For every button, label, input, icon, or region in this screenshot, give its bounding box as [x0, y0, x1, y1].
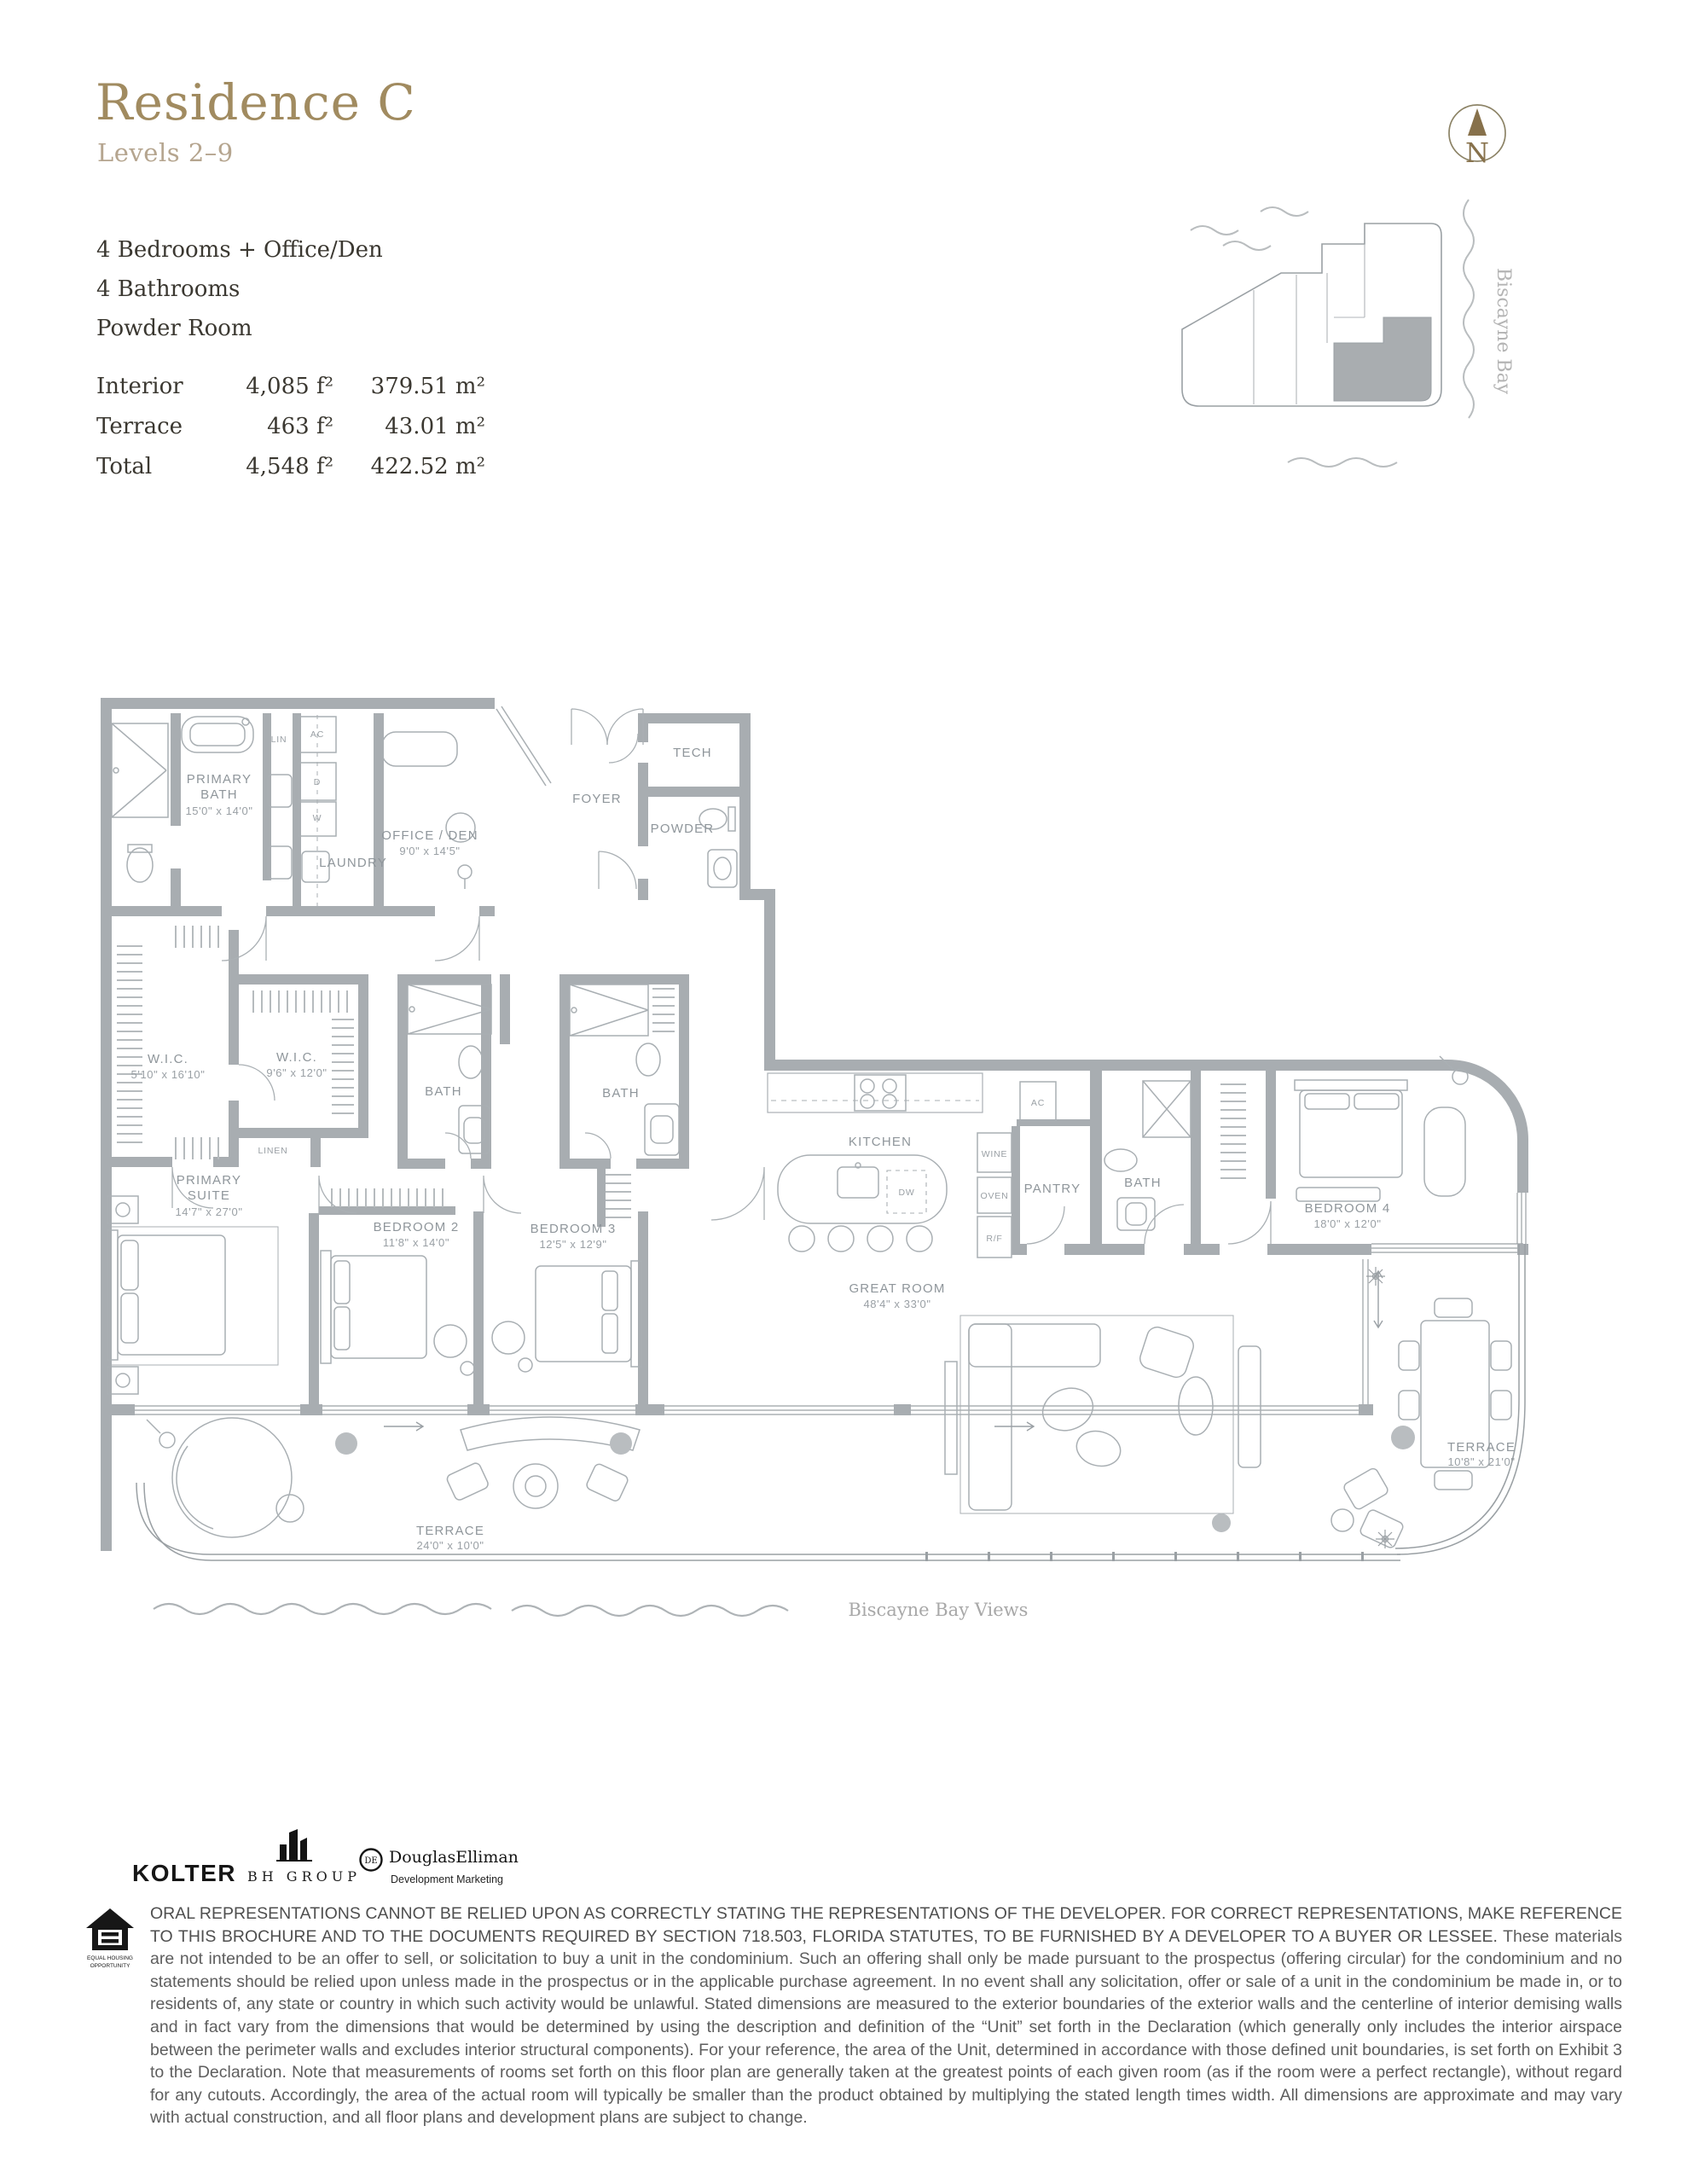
room-label: LINEN — [258, 1146, 288, 1156]
room-label: SUITE — [188, 1188, 230, 1203]
room-label: AC — [1031, 1098, 1045, 1108]
douglas-elliman-icon: DE — [358, 1846, 386, 1873]
toilet-icon — [127, 848, 153, 882]
furniture — [107, 706, 1511, 1549]
armchair-icon — [434, 1325, 467, 1357]
chair-icon — [1399, 1391, 1419, 1420]
room-label: R/F — [986, 1234, 1002, 1244]
room-dims: 11'8" x 14'0" — [383, 1236, 449, 1249]
room-label: BEDROOM 4 — [1305, 1201, 1391, 1216]
room-label: D — [314, 777, 321, 787]
feature-bedrooms: 4 Bedrooms + Office/Den — [96, 230, 383, 270]
north-triangle-icon — [1468, 108, 1487, 136]
room-label: W.I.C. — [148, 1052, 188, 1066]
room-label: OFFICE / DEN — [381, 828, 478, 843]
room-dims: 10'8" x 21'0" — [1447, 1455, 1515, 1468]
armchair-icon — [492, 1321, 525, 1354]
area-label: Interior — [96, 374, 216, 399]
room-label: KITCHEN — [849, 1135, 912, 1149]
area-row-terrace: Terrace 463 f² 43.01 m² — [96, 414, 485, 454]
nightstand-icon — [107, 1367, 138, 1394]
room-label: PRIMARY — [187, 772, 252, 787]
room-dims: 14'7" x 27'0" — [175, 1205, 242, 1218]
room-label: TECH — [673, 746, 712, 760]
brochure-page: { "header": { "title": "Residence C", "s… — [0, 0, 1687, 2184]
kolter-logo: KOLTER — [132, 1860, 236, 1887]
area-row-total: Total 4,548 f² 422.52 m² — [96, 454, 485, 494]
biscayne-bay-caption: Biscayne Bay — [1493, 268, 1514, 395]
terrace-rails — [136, 1244, 1525, 1560]
room-label: AC — [310, 729, 324, 740]
bay-water: Biscayne Bay Views — [154, 1165, 1535, 1626]
planters — [335, 1426, 1415, 1532]
room-label: DW — [898, 1188, 914, 1198]
north-arrow-icon: N — [1445, 89, 1510, 177]
room-label: BEDROOM 3 — [530, 1222, 617, 1236]
sofa-icon — [969, 1324, 1012, 1510]
douglas-elliman-sub: Development Marketing — [391, 1873, 503, 1885]
room-label: TERRACE — [416, 1524, 484, 1538]
toilet-icon — [636, 1043, 660, 1076]
chair-icon — [1491, 1391, 1511, 1420]
legal-disclaimer: ORAL REPRESENTATIONS CANNOT BE RELIED UP… — [150, 1902, 1622, 2129]
stool-icon — [867, 1226, 893, 1252]
douglas-elliman-logo: DouglasElliman — [389, 1848, 519, 1867]
room-label: PRIMARY — [177, 1173, 241, 1188]
room-label: TERRACE — [1447, 1440, 1516, 1455]
room-label: PANTRY — [1024, 1182, 1081, 1196]
lounge-chair-icon — [1342, 1467, 1389, 1510]
room-dims: 24'0" x 10'0" — [416, 1539, 484, 1552]
shower-icon — [570, 985, 648, 1036]
room-label: WINE — [982, 1149, 1008, 1159]
bh-group-icon — [275, 1821, 314, 1863]
daybed-icon — [382, 732, 457, 766]
area-imperial: 463 f² — [216, 414, 333, 439]
side-table-icon — [1331, 1509, 1354, 1531]
room-dims: 9'6" x 12'0" — [266, 1066, 327, 1079]
chair-icon — [1435, 1298, 1472, 1317]
room-label: BEDROOM 2 — [374, 1220, 460, 1234]
nightstand-icon — [107, 1196, 138, 1223]
counter — [768, 1073, 983, 1112]
lounge-chair-icon — [445, 1461, 490, 1501]
area-metric: 43.01 m² — [333, 414, 485, 439]
sink-icon — [708, 850, 737, 887]
lounge-chair-icon — [585, 1462, 629, 1502]
console-icon — [1238, 1346, 1261, 1467]
bed-icon — [321, 1251, 331, 1363]
room-labels: PRIMARY BATH 15'0" x 14'0" LIN AC D W LA… — [131, 729, 1516, 1552]
area-label: Terrace — [96, 414, 216, 439]
eho-line1: EQUAL HOUSING — [87, 1955, 133, 1961]
shower-icon — [408, 985, 491, 1034]
eho-line2: OPPORTUNITY — [90, 1963, 130, 1969]
area-metric: 422.52 m² — [333, 454, 485, 479]
area-imperial: 4,085 f² — [216, 374, 333, 399]
sink-icon — [645, 1104, 679, 1155]
room-dims: 5'10" x 16'10" — [131, 1068, 206, 1081]
round-chair-icon — [172, 1418, 292, 1537]
area-metric: 379.51 m² — [333, 374, 485, 399]
room-label: BATH — [200, 787, 238, 802]
room-label: LAUNDRY — [319, 856, 387, 870]
sink-icon — [268, 846, 292, 879]
equal-housing-icon: EQUAL HOUSING OPPORTUNITY — [82, 1906, 138, 1971]
area-table: Interior 4,085 f² 379.51 m² Terrace 463 … — [96, 374, 485, 494]
room-label: LIN — [271, 735, 287, 745]
feature-bathrooms: 4 Bathrooms — [96, 270, 383, 309]
room-dims: 15'0" x 14'0" — [185, 804, 252, 817]
room-dims: 12'5" x 12'9" — [539, 1238, 606, 1251]
sink-icon — [268, 775, 292, 807]
coffee-table-icon — [513, 1464, 558, 1508]
room-label: BATH — [602, 1086, 640, 1101]
chaise-icon — [1424, 1107, 1465, 1196]
room-label: FOYER — [572, 792, 622, 806]
sofa-icon — [969, 1324, 1100, 1367]
shower-icon — [112, 723, 168, 817]
toilet-icon — [1104, 1149, 1137, 1171]
feature-list: 4 Bedrooms + Office/Den 4 Bathrooms Powd… — [96, 230, 383, 348]
floor-plan: PRIMARY BATH 15'0" x 14'0" LIN AC D W LA… — [85, 674, 1535, 1655]
north-label: N — [1465, 136, 1489, 169]
svg-text:DE: DE — [364, 1856, 377, 1866]
legal-caps: ORAL REPRESENTATIONS CANNOT BE RELIED UP… — [150, 1904, 1622, 1946]
stool-icon — [789, 1226, 815, 1252]
ottoman-icon — [1073, 1426, 1125, 1471]
room-label: BATH — [1124, 1176, 1162, 1190]
room-label: W.I.C. — [276, 1050, 317, 1065]
room-label: POWDER — [651, 822, 715, 836]
chair-icon — [1435, 1471, 1472, 1490]
room-label: GREAT ROOM — [849, 1281, 945, 1296]
bh-group-logo: BH GROUP — [247, 1868, 361, 1885]
bay-views-caption: Biscayne Bay Views — [849, 1600, 1029, 1620]
area-label: Total — [96, 454, 216, 479]
room-dims: 18'0" x 12'0" — [1313, 1217, 1381, 1230]
toilet-icon — [459, 1046, 483, 1078]
sink-icon — [838, 1167, 878, 1198]
walls — [101, 698, 1528, 1551]
room-dims: 48'4" x 33'0" — [863, 1298, 930, 1310]
building-footprint — [1182, 224, 1441, 406]
bed-icon — [1295, 1080, 1407, 1090]
key-plan: Biscayne Bay — [1160, 186, 1535, 493]
armchair-icon — [1138, 1325, 1197, 1380]
chair-icon — [1399, 1341, 1419, 1370]
feature-powder: Powder Room — [96, 309, 383, 348]
rug — [111, 1227, 278, 1365]
legal-body: These materials are not intended to be a… — [150, 1927, 1622, 2128]
media-console-icon — [945, 1362, 957, 1474]
room-label: BATH — [425, 1084, 462, 1099]
bench-icon — [1296, 1188, 1380, 1201]
area-imperial: 4,548 f² — [216, 454, 333, 479]
stool-icon — [828, 1226, 854, 1252]
page-subtitle: Levels 2–9 — [97, 138, 234, 167]
area-row-interior: Interior 4,085 f² 379.51 m² — [96, 374, 485, 414]
room-label: W — [313, 813, 322, 823]
room-label: OVEN — [981, 1191, 1009, 1201]
stool-icon — [907, 1226, 932, 1252]
page-title: Residence C — [96, 73, 416, 131]
room-dims: 9'0" x 14'5" — [399, 845, 460, 857]
ottoman-icon — [1037, 1381, 1099, 1438]
chair-icon — [1491, 1341, 1511, 1370]
